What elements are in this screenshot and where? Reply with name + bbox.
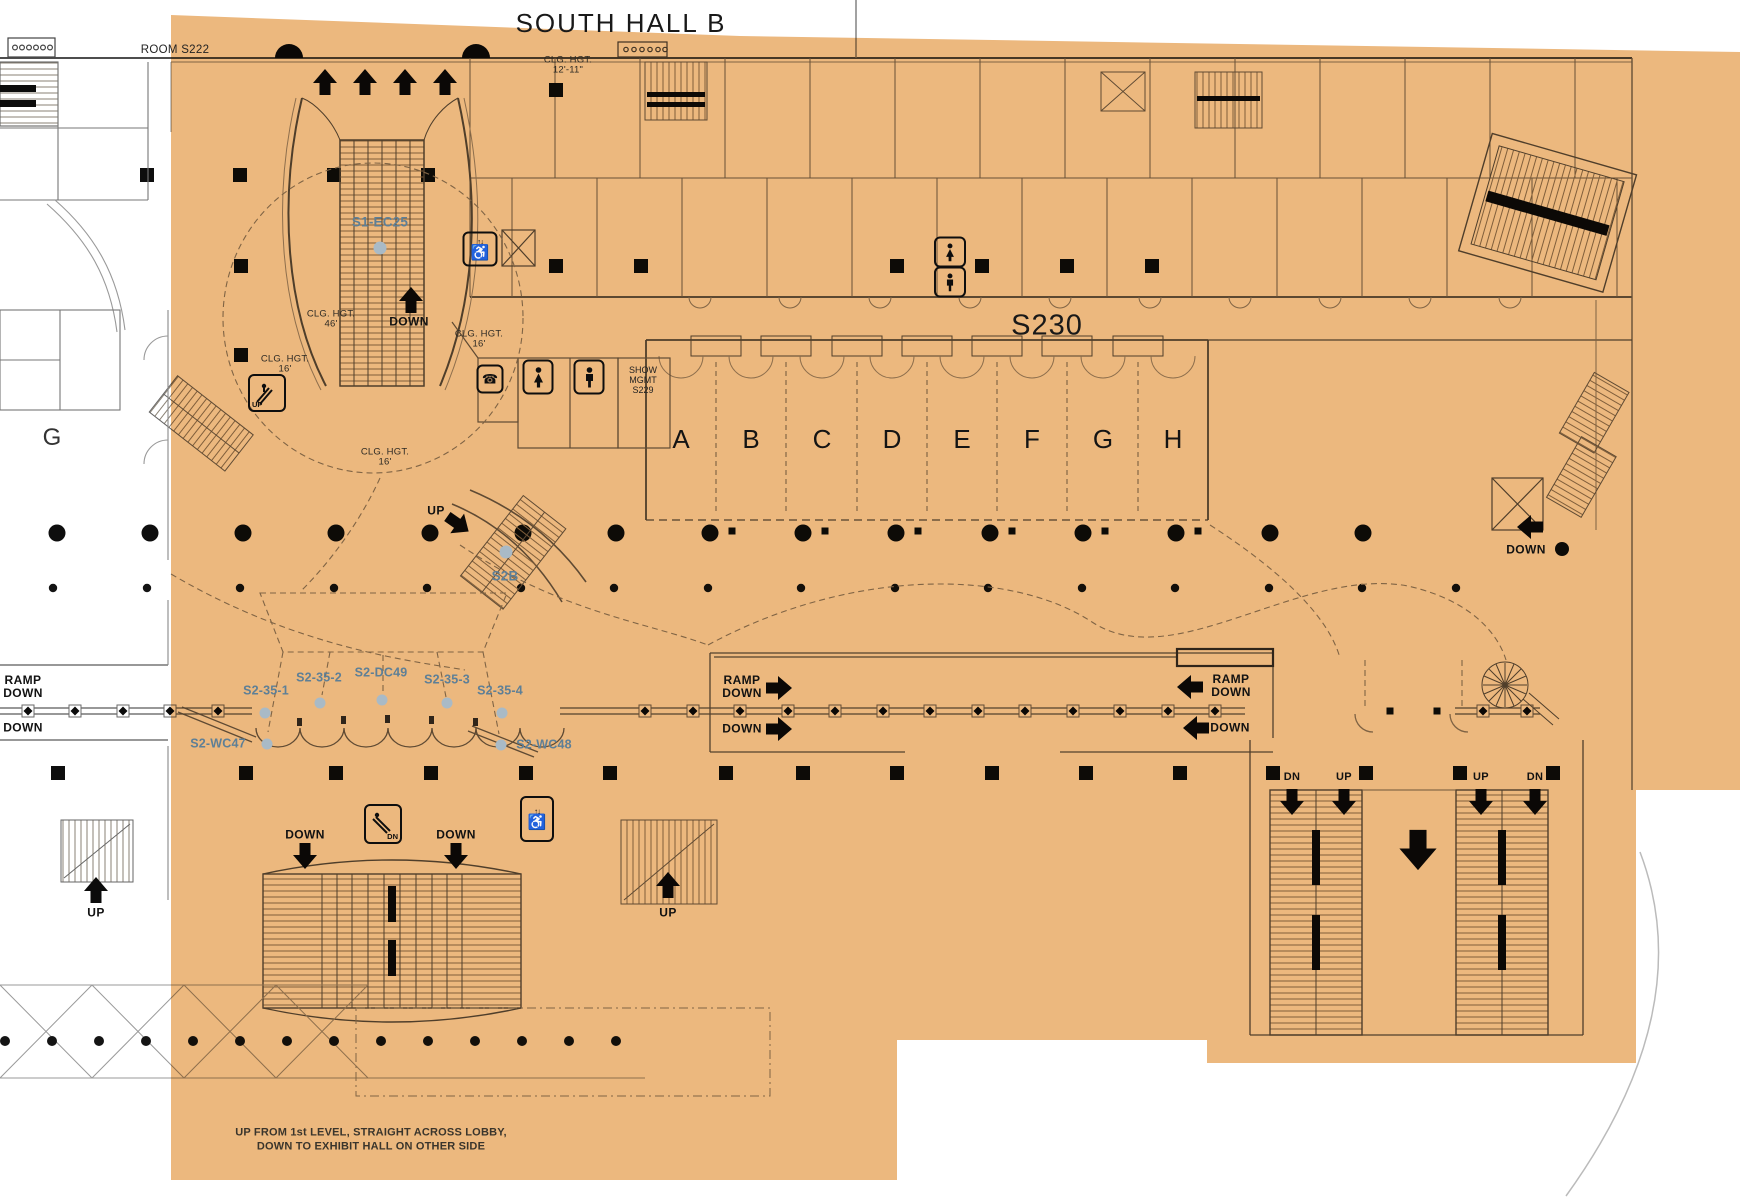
down-right-label: DOWN — [1210, 722, 1250, 735]
hall-section-d: D — [883, 425, 902, 453]
down-right-mid-label: DOWN — [1506, 544, 1546, 557]
stair-dn-label-1: DN — [1284, 772, 1301, 784]
stair-dn-label-2: DN — [1527, 772, 1544, 784]
room-s222-label: ROOM S222 — [141, 44, 210, 56]
womens-restroom-icon — [523, 360, 554, 395]
zone-marker-dot-1 — [260, 708, 271, 719]
ceiling-height-16-a: CLG. HGT.16' — [455, 330, 503, 351]
floor-plan: SOUTH HALL B ROOM S222 CLG. HGT.12'-11" … — [0, 0, 1740, 1200]
mens-restroom-icon — [574, 360, 605, 395]
down-center-label: DOWN — [722, 723, 762, 736]
zone-s2-wc48-label: S2-WC48 — [516, 738, 572, 752]
hall-section-c: C — [813, 425, 832, 453]
ceiling-height-16-b: CLG. HGT.16' — [261, 355, 309, 376]
escalator-up-icon: UP — [248, 374, 286, 412]
zone-marker-dot-2 — [315, 698, 326, 709]
zone-marker-dot-s1ec25 — [374, 242, 387, 255]
hall-section-e: E — [953, 425, 970, 453]
up-to-s2b-label: UP — [427, 505, 444, 518]
room-g-label: G — [43, 425, 62, 451]
womens-restroom-upper-icon — [934, 237, 966, 268]
zone-s1-ec25-label: S1-EC25 — [352, 216, 408, 231]
room-s230-label: S230 — [1011, 310, 1083, 341]
ramp-down-right-label: RAMPDOWN — [1211, 673, 1251, 699]
ceiling-height-12: CLG. HGT.12'-11" — [544, 56, 592, 77]
zone-s2-wc47-label: S2-WC47 — [190, 737, 246, 751]
phone-icon: ☎ — [477, 365, 504, 394]
zone-marker-dot-wc48 — [496, 740, 507, 751]
ceiling-height-16-c: CLG. HGT.16' — [361, 448, 409, 469]
zone-marker-dot-4 — [442, 698, 453, 709]
ramp-down-center-label: RAMPDOWN — [722, 674, 762, 700]
show-mgmt-s229-label: SHOWMGMTS229 — [629, 365, 657, 395]
down-stair-left-label: DOWN — [285, 829, 325, 842]
down-left-label: DOWN — [3, 722, 43, 735]
zone-s2-35-4-label: S2-35-4 — [477, 684, 523, 698]
zone-marker-dot-s2b — [500, 546, 513, 559]
hall-section-a: A — [672, 425, 689, 453]
down-stair-right-label: DOWN — [436, 829, 476, 842]
mens-restroom-upper-icon — [934, 267, 966, 298]
escalator-down-icon: DN — [364, 804, 402, 844]
zone-s2b-label: S2B — [492, 570, 519, 585]
up-bottom-left-label: UP — [87, 907, 104, 920]
ceiling-height-46: CLG. HGT.46' — [307, 310, 355, 331]
stair-up-label-1: UP — [1336, 772, 1352, 784]
zone-s2-dc49-label: S2-DC49 — [355, 666, 408, 680]
accessible-elevator-bottom-icon: ↑↓ ♿ — [520, 796, 554, 842]
up-bottom-center-label: UP — [659, 907, 676, 920]
zone-marker-dot-3 — [377, 695, 388, 706]
zone-s2-35-3-label: S2-35-3 — [424, 673, 470, 687]
down-upper-label: DOWN — [389, 316, 429, 329]
accessible-elevator-icon: ↑↓ ♿ — [463, 232, 498, 267]
wayfinding-note: UP FROM 1st LEVEL, STRAIGHT ACROSS LOBBY… — [235, 1126, 507, 1154]
hall-section-f: F — [1024, 425, 1040, 453]
hall-section-b: B — [742, 425, 759, 453]
ramp-down-left-label: RAMPDOWN — [3, 674, 43, 700]
zone-s2-35-2-label: S2-35-2 — [296, 671, 342, 685]
stair-up-label-2: UP — [1473, 772, 1489, 784]
hall-section-h: H — [1164, 425, 1183, 453]
zone-marker-dot-5 — [497, 708, 508, 719]
hall-section-g: G — [1093, 425, 1113, 453]
zone-s2-35-1-label: S2-35-1 — [243, 684, 289, 698]
page-title: SOUTH HALL B — [516, 9, 727, 37]
zone-marker-dot-wc47 — [262, 739, 273, 750]
